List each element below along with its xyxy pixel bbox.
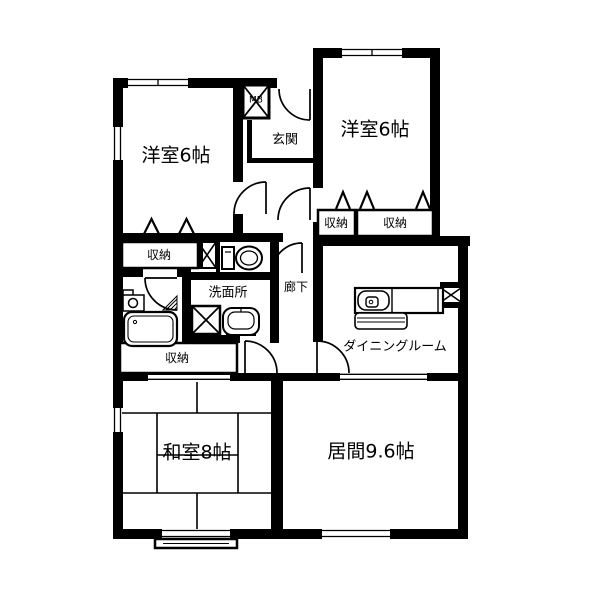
closet-label-nw: 収納 (147, 249, 171, 261)
closet-label-ne-left: 収納 (324, 217, 348, 229)
closet-label-ne-right: 収納 (383, 217, 407, 229)
closet-label-mid: 収納 (165, 352, 189, 364)
shower-mixer-icon (123, 290, 144, 311)
floor-plan-drawing (0, 0, 600, 600)
room-label-washroom: 洗面所 (208, 287, 247, 300)
room-label-entrance: 玄関 (272, 134, 298, 147)
meter-box-label: MB (249, 97, 263, 106)
room-label-living: 居間9.6帖 (327, 443, 414, 462)
bathtub-icon (124, 312, 177, 346)
room-label-hallway: 廊下 (284, 281, 308, 293)
room-label-bedroom-ne: 洋室6帖 (340, 121, 409, 140)
kitchen-counter-icon (355, 288, 443, 329)
room-label-bedroom-nw: 洋室6帖 (141, 147, 210, 166)
room-label-dining: ダイニングルーム (343, 341, 447, 354)
floor-plan: 洋室6帖 洋室6帖 玄関 MB 収納 収納 収納 収納 洗面所 廊下 ダイニング… (0, 0, 600, 600)
pipe-shaft-icon (198, 242, 216, 268)
vanity-sink-icon (223, 308, 259, 335)
door-hatch (163, 296, 177, 310)
washer-pan-icon (192, 306, 220, 334)
toilet-icon (222, 247, 262, 270)
room-label-japanese-room: 和室8帖 (162, 444, 231, 463)
